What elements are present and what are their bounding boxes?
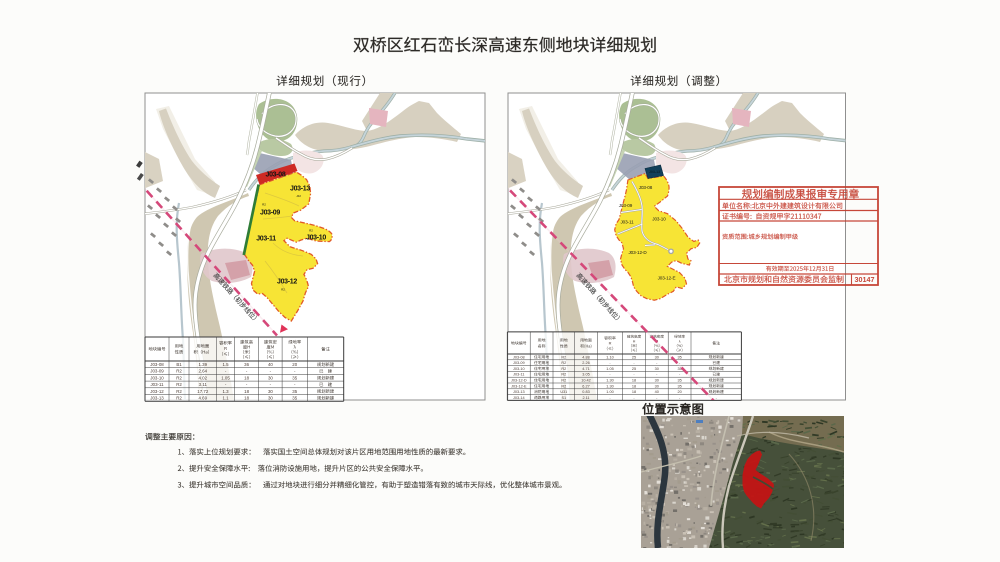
svg-text:25: 25 [632,355,636,359]
svg-text:1.30: 1.30 [606,379,613,383]
svg-text:J03-08: J03-08 [150,362,164,367]
svg-text:J03-14: J03-14 [513,396,525,400]
svg-text:1.39: 1.39 [199,362,208,367]
svg-text:U31: U31 [560,390,567,394]
svg-text:J03-13: J03-13 [150,396,164,401]
svg-text:18: 18 [632,390,636,394]
svg-text:R: R [224,346,227,351]
svg-text:J03-10: J03-10 [150,375,164,380]
svg-text:10.42: 10.42 [581,379,591,383]
svg-text:J03-10: J03-10 [652,217,666,222]
svg-text:J03-11: J03-11 [256,236,276,243]
svg-text:R2: R2 [561,384,566,388]
svg-text:40: 40 [268,362,273,367]
svg-text:20: 20 [677,390,681,394]
svg-text:R2: R2 [561,373,566,377]
svg-text:J03-09: J03-09 [619,203,633,208]
svg-text:1.05: 1.05 [606,367,613,371]
svg-text:J03-12: J03-12 [150,389,164,394]
svg-text:J03-09: J03-09 [150,369,164,374]
svg-text:R2: R2 [309,229,313,233]
svg-text:30: 30 [655,355,659,359]
svg-text:H: H [633,340,636,344]
svg-text:35: 35 [677,379,681,383]
svg-text:35: 35 [292,375,297,380]
svg-text:30: 30 [655,367,659,371]
svg-text:1.3: 1.3 [222,389,229,394]
svg-text:R2: R2 [176,396,182,401]
svg-text:17.72: 17.72 [197,389,209,394]
svg-text:1.10: 1.10 [606,355,613,359]
svg-text:4.88: 4.88 [582,355,589,359]
svg-text:1.05: 1.05 [221,375,230,380]
svg-text:S1: S1 [561,396,566,400]
svg-text:J03-09: J03-09 [260,210,280,217]
svg-text:J03-13: J03-13 [290,186,310,193]
svg-text:30: 30 [655,379,659,383]
svg-text:1.00: 1.00 [606,390,613,394]
svg-text:J03-12-E: J03-12-E [511,384,527,388]
svg-text:0.83: 0.83 [582,390,589,394]
svg-text:30: 30 [655,384,659,388]
svg-text:J03-10: J03-10 [513,367,525,371]
svg-text:25: 25 [632,367,636,371]
svg-text:R2: R2 [176,375,182,380]
svg-text:3.05: 3.05 [582,373,589,377]
svg-text:35: 35 [677,355,681,359]
svg-text:J03-13: J03-13 [649,170,660,174]
svg-text:J03-13: J03-13 [513,390,525,394]
svg-text:1.1: 1.1 [222,396,229,401]
svg-text:J03-12: J03-12 [277,279,297,286]
svg-text:J03-11: J03-11 [513,373,524,377]
svg-text:30: 30 [268,375,273,380]
svg-text:18: 18 [244,375,249,380]
svg-text:-R2: -R2 [296,194,301,198]
svg-text:J03-09: J03-09 [513,361,525,365]
svg-text:40: 40 [655,390,659,394]
svg-text:30: 30 [268,396,273,401]
svg-text:J03-08: J03-08 [639,185,653,190]
svg-text:1.5: 1.5 [222,362,229,367]
svg-text:R2: R2 [176,369,182,374]
svg-text:35: 35 [292,396,297,401]
svg-text:R2: R2 [561,379,566,383]
svg-text:J03-12-D: J03-12-D [511,379,527,383]
svg-text:18: 18 [632,379,636,383]
svg-text:35: 35 [677,384,681,388]
svg-text:4.69: 4.69 [199,396,208,401]
svg-text:3.11: 3.11 [199,382,208,387]
svg-text:36: 36 [244,362,249,367]
svg-text:J03-08: J03-08 [513,355,525,359]
svg-text:30147: 30147 [855,275,875,284]
svg-text:2.26: 2.26 [582,361,589,365]
svg-text:20: 20 [292,362,297,367]
svg-text:2.11: 2.11 [582,396,589,400]
svg-text:R2: R2 [561,355,566,359]
svg-text:λ: λ [679,340,681,344]
svg-text:J03-10: J03-10 [306,235,326,242]
svg-text:4.71: 4.71 [582,367,589,371]
svg-text:J03-12-E: J03-12-E [658,276,676,281]
svg-text:18: 18 [244,389,249,394]
svg-text:J03-11: J03-11 [150,382,164,387]
svg-text:18: 18 [244,396,249,401]
svg-text:J03-12-D: J03-12-D [628,250,647,255]
svg-text:18: 18 [632,384,636,388]
svg-text:2.64: 2.64 [199,369,208,374]
svg-text:35: 35 [292,389,297,394]
svg-text:R2: R2 [176,382,182,387]
svg-text:30: 30 [268,389,273,394]
svg-text:4.02: 4.02 [199,375,208,380]
svg-text:6.27: 6.27 [582,384,589,388]
svg-text:R2: R2 [262,203,266,207]
svg-text:R2: R2 [561,367,566,371]
svg-text:R2: R2 [561,361,566,365]
svg-text:J03-08: J03-08 [266,172,286,179]
svg-text:J03-11: J03-11 [620,220,634,225]
svg-text:R2: R2 [176,389,182,394]
svg-text:1.30: 1.30 [606,384,613,388]
svg-text:R2: R2 [281,288,285,292]
svg-text:R: R [609,341,612,346]
svg-text:B1: B1 [176,362,182,367]
